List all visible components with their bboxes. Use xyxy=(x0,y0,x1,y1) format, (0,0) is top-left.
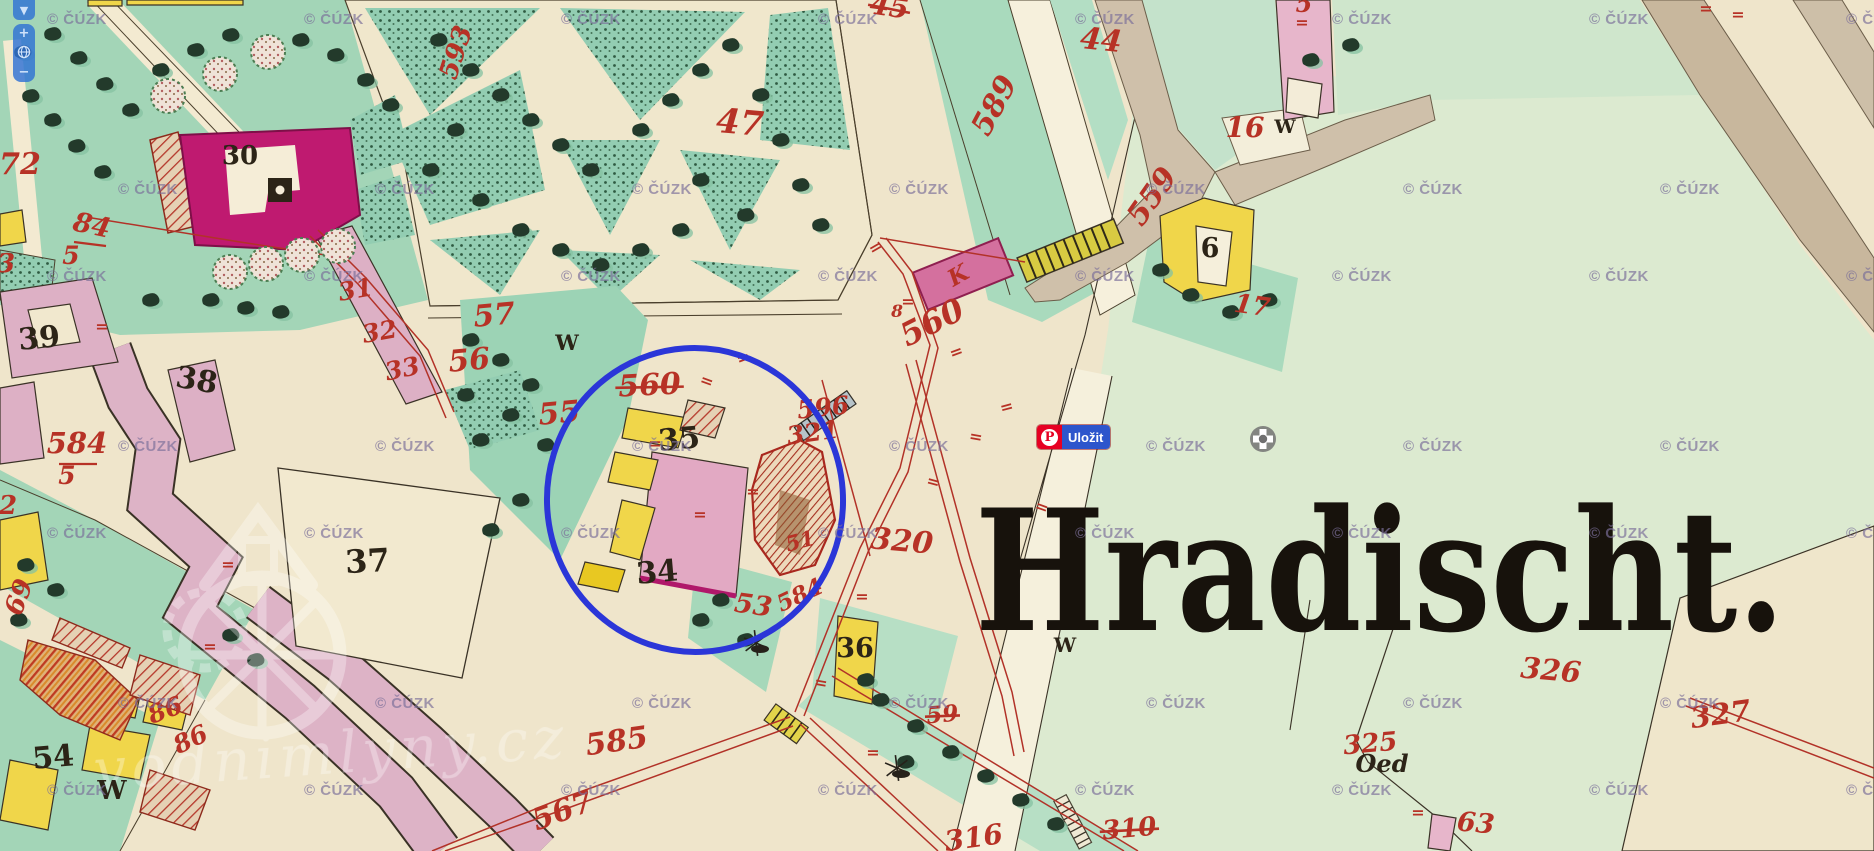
svg-text:72: 72 xyxy=(0,147,41,182)
parcel-label: W xyxy=(96,776,127,806)
svg-text:3: 3 xyxy=(0,249,15,279)
parcel-label: 17 xyxy=(1232,289,1272,324)
parcel-label: 63 xyxy=(1456,806,1496,840)
boundary-tick: = xyxy=(221,555,234,574)
boundary-tick: = xyxy=(855,587,868,606)
boundary-tick: = xyxy=(1699,0,1712,18)
map-canvas[interactable]: vodnimlyny.cz 59345474458951655917560560… xyxy=(0,0,1874,851)
svg-text:W: W xyxy=(1273,116,1296,138)
parcel-label: 2 xyxy=(0,491,17,521)
svg-text:W: W xyxy=(96,776,127,806)
parcel-label: 560 xyxy=(614,366,684,405)
parcel-label: 44 xyxy=(1078,21,1123,60)
svg-text:34: 34 xyxy=(635,553,680,592)
svg-text:53: 53 xyxy=(732,588,774,624)
parcel-label: 320 xyxy=(869,521,935,561)
globe-icon xyxy=(17,45,31,59)
parcel-label: 54 xyxy=(31,738,76,777)
parcel-label: 38 xyxy=(173,360,220,402)
boundary-tick: = xyxy=(1411,803,1424,822)
svg-text:44: 44 xyxy=(1078,21,1123,60)
parcel-label: 36 xyxy=(836,633,874,664)
svg-text:31: 31 xyxy=(336,272,375,307)
zoom-out-button[interactable]: − xyxy=(19,66,30,79)
parcel-label: 5 xyxy=(62,241,79,270)
parcel-label: 47 xyxy=(715,101,766,145)
map-viewport[interactable]: vodnimlyny.cz 59345474458951655917560560… xyxy=(0,0,1874,851)
chevron-down-icon: ▼ xyxy=(20,2,28,20)
parcel-label: 57 xyxy=(472,296,517,335)
parcel-label: 56 xyxy=(447,341,492,380)
svg-text:2: 2 xyxy=(0,491,17,521)
parcel-label: Oed xyxy=(1356,749,1409,778)
boundary-tick: = xyxy=(901,292,914,311)
svg-text:38: 38 xyxy=(173,360,220,402)
svg-text:17: 17 xyxy=(1232,289,1272,324)
svg-text:35: 35 xyxy=(657,420,702,459)
svg-text:32: 32 xyxy=(360,314,399,349)
svg-text:56: 56 xyxy=(447,341,492,380)
parcel-label: 6 xyxy=(1201,233,1220,264)
parcel-label: 5 xyxy=(58,461,75,490)
boundary-tick: = xyxy=(648,434,661,453)
boundary-tick: = xyxy=(1295,13,1308,32)
parcel-label: 310 xyxy=(1098,812,1160,847)
svg-text:5: 5 xyxy=(62,241,79,270)
svg-text:47: 47 xyxy=(715,101,766,145)
parcel-label: 3 xyxy=(0,249,15,279)
svg-text:63: 63 xyxy=(1456,806,1496,840)
parcel-label: 584 xyxy=(47,426,108,460)
boundary-tick: = xyxy=(866,743,879,762)
boundary-tick: = xyxy=(1731,5,1744,24)
boundary-tick: = xyxy=(693,505,706,524)
parcel-label: 31 xyxy=(336,272,375,307)
parcel-label: 34 xyxy=(635,553,680,592)
parcel-label: 72 xyxy=(0,147,41,182)
parcel-label: 39 xyxy=(17,319,62,358)
parcel-label: 59 xyxy=(924,700,961,730)
svg-text:584: 584 xyxy=(47,426,108,460)
parcel-label: 37 xyxy=(344,541,390,581)
parcel-label: 16 xyxy=(1226,111,1265,144)
parcel-label: 35 xyxy=(657,420,702,459)
svg-text:560: 560 xyxy=(617,366,681,404)
svg-text:30: 30 xyxy=(222,141,258,171)
svg-text:36: 36 xyxy=(836,633,874,664)
zoom-in-button[interactable]: + xyxy=(19,27,30,40)
boundary-tick: = xyxy=(95,317,108,336)
svg-text:W: W xyxy=(554,330,579,355)
svg-text:5: 5 xyxy=(58,461,75,490)
pinterest-icon: P xyxy=(1037,425,1062,449)
parcel-label: 32 xyxy=(360,314,399,349)
parcel-label: 30 xyxy=(222,141,258,171)
boundary-tick: = xyxy=(746,482,759,501)
parcel-label: W xyxy=(554,330,579,355)
svg-text:Oed: Oed xyxy=(1356,749,1409,778)
parcel-label: 53 xyxy=(732,588,774,624)
svg-text:16: 16 xyxy=(1226,111,1265,144)
pinterest-save-button[interactable]: P Uložit xyxy=(1037,425,1110,449)
svg-text:37: 37 xyxy=(344,541,390,581)
parcel-label: W xyxy=(1273,116,1296,138)
pan-down-button[interactable]: ▼ xyxy=(13,0,35,20)
svg-text:320: 320 xyxy=(869,521,935,561)
svg-text:6: 6 xyxy=(1201,233,1220,264)
pinterest-save-label: Uložit xyxy=(1062,425,1110,449)
svg-text:39: 39 xyxy=(17,319,62,358)
svg-text:57: 57 xyxy=(472,296,517,335)
place-name-label: Hradischt. xyxy=(975,472,1785,670)
globe-button[interactable] xyxy=(17,45,31,62)
boundary-tick: = xyxy=(203,637,216,656)
svg-text:54: 54 xyxy=(31,738,76,777)
